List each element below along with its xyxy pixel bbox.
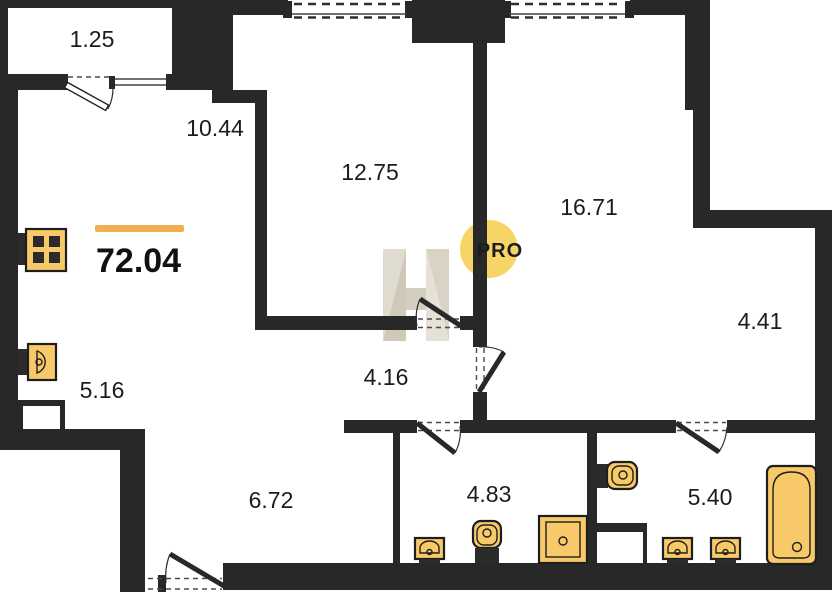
window-top-right bbox=[502, 1, 634, 18]
wall-niche bbox=[23, 406, 60, 429]
washbasin-icon bbox=[415, 538, 444, 564]
room-area-label-bedroom: 12.75 bbox=[341, 159, 399, 185]
door-room-16 bbox=[477, 347, 505, 392]
door-bath-small bbox=[417, 423, 460, 454]
total-area-accent-bar bbox=[95, 225, 184, 232]
room-area-label-wardrobe: 4.41 bbox=[738, 308, 783, 334]
total-area: 72.04 bbox=[95, 225, 184, 280]
room-area-label-balcony: 1.25 bbox=[70, 26, 115, 52]
watermark-pro-text: PRO bbox=[477, 240, 523, 262]
room-area-label-hall: 4.16 bbox=[364, 364, 409, 390]
total-area-value: 72.04 bbox=[96, 242, 181, 280]
window-top-left bbox=[283, 1, 414, 18]
kitchen-sink-icon bbox=[18, 344, 56, 380]
room-area-label-bath-large: 5.40 bbox=[688, 484, 733, 510]
floor-plan: 72.04 1.25 10.44 12.75 16.71 4.41 4.16 5… bbox=[0, 0, 832, 600]
room-area-label-bath-small: 4.83 bbox=[467, 481, 512, 507]
washbasin-icon bbox=[663, 538, 692, 564]
balcony-door-leaf bbox=[65, 82, 109, 110]
toilet-icon bbox=[593, 462, 637, 489]
shower-tray-icon bbox=[539, 516, 587, 563]
door-bath-large bbox=[676, 423, 727, 453]
room-area-label-nook: 5.16 bbox=[80, 377, 125, 403]
floor-plan-canvas: 72.04 1.25 10.44 12.75 16.71 4.41 4.16 5… bbox=[0, 0, 832, 600]
room-area-label-entry: 6.72 bbox=[249, 487, 294, 513]
washbasin-icon bbox=[711, 538, 740, 564]
room-area-label-living: 16.71 bbox=[560, 194, 618, 220]
toilet-icon bbox=[473, 521, 501, 563]
bathtub-icon bbox=[767, 466, 816, 564]
balcony-door-window bbox=[62, 74, 173, 110]
room-area-label-kitchen: 10.44 bbox=[186, 115, 244, 141]
stove-icon bbox=[18, 229, 66, 271]
